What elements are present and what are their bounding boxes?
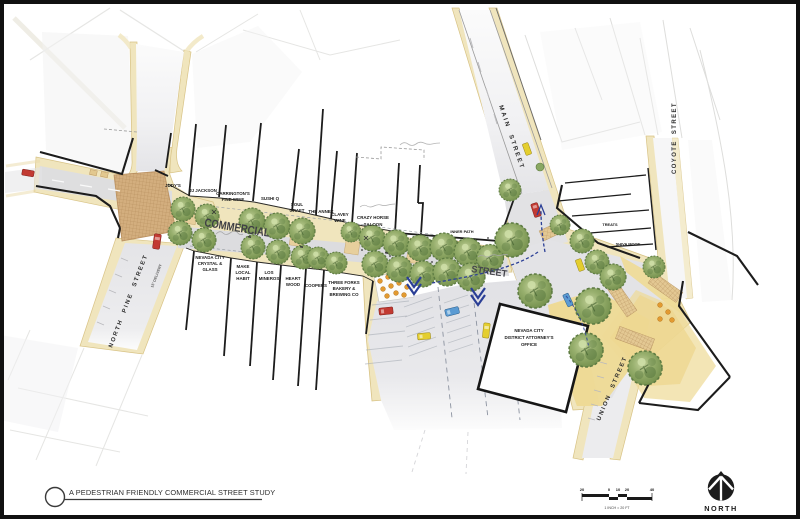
svg-text:HEART: HEART (285, 276, 300, 281)
svg-text:GLASS: GLASS (202, 267, 217, 272)
svg-text:LOCAL: LOCAL (235, 270, 250, 275)
svg-text:LOS: LOS (264, 270, 273, 275)
svg-text:MINEROS: MINEROS (259, 276, 280, 281)
svg-text:SALOON: SALOON (364, 222, 383, 227)
svg-text:JJ JACKSON: JJ JACKSON (189, 188, 217, 193)
svg-text:HABIT: HABIT (236, 276, 250, 281)
svg-text:20: 20 (580, 487, 585, 492)
svg-text:10: 10 (616, 487, 621, 492)
svg-text:THREE FORKS: THREE FORKS (328, 280, 360, 285)
svg-text:COOPERS: COOPERS (305, 283, 327, 288)
svg-text:MAKE: MAKE (237, 264, 250, 269)
svg-text:DISTRICT ATTORNEY'S: DISTRICT ATTORNEY'S (504, 335, 553, 340)
svg-text:SOUL: SOUL (291, 202, 304, 207)
svg-text:20: 20 (625, 487, 630, 492)
svg-text:INNER PATH: INNER PATH (450, 229, 473, 234)
svg-text:WINE: WINE (334, 218, 346, 223)
svg-text:1 INCH = 20 FT: 1 INCH = 20 FT (604, 506, 630, 510)
svg-text:CLAVEY: CLAVEY (331, 212, 349, 217)
svg-text:TREATS: TREATS (602, 222, 618, 227)
svg-text:THE ANNEX: THE ANNEX (308, 209, 333, 214)
svg-text:WOOD: WOOD (286, 282, 300, 287)
svg-text:40: 40 (650, 487, 655, 492)
svg-text:NORTH: NORTH (704, 504, 737, 513)
svg-text:BAKERY &: BAKERY & (333, 286, 357, 291)
svg-text:SUSHI Q: SUSHI Q (261, 196, 280, 201)
svg-text:CRYSTAL &: CRYSTAL & (198, 261, 223, 266)
svg-text:A PEDESTRIAN FRIENDLY COMMERCI: A PEDESTRIAN FRIENDLY COMMERCIAL STREET … (69, 488, 275, 497)
svg-text:OFFICE: OFFICE (521, 342, 537, 347)
svg-text:COYOTE STREET: COYOTE STREET (672, 102, 678, 174)
svg-text:JUDY'S: JUDY'S (165, 183, 181, 188)
svg-text:FINE WINE: FINE WINE (222, 197, 245, 202)
svg-text:BREWING CO: BREWING CO (329, 292, 359, 297)
svg-text:CRAZY HORSE: CRAZY HORSE (357, 215, 389, 220)
svg-text:NEVADA CITY: NEVADA CITY (514, 328, 543, 333)
svg-text:SHIVA MOON: SHIVA MOON (616, 242, 641, 247)
svg-text:NEVADA CITY: NEVADA CITY (195, 255, 224, 260)
svg-text:CARRINGTON'S: CARRINGTON'S (216, 191, 250, 196)
svg-text:CRAFT: CRAFT (290, 208, 305, 213)
